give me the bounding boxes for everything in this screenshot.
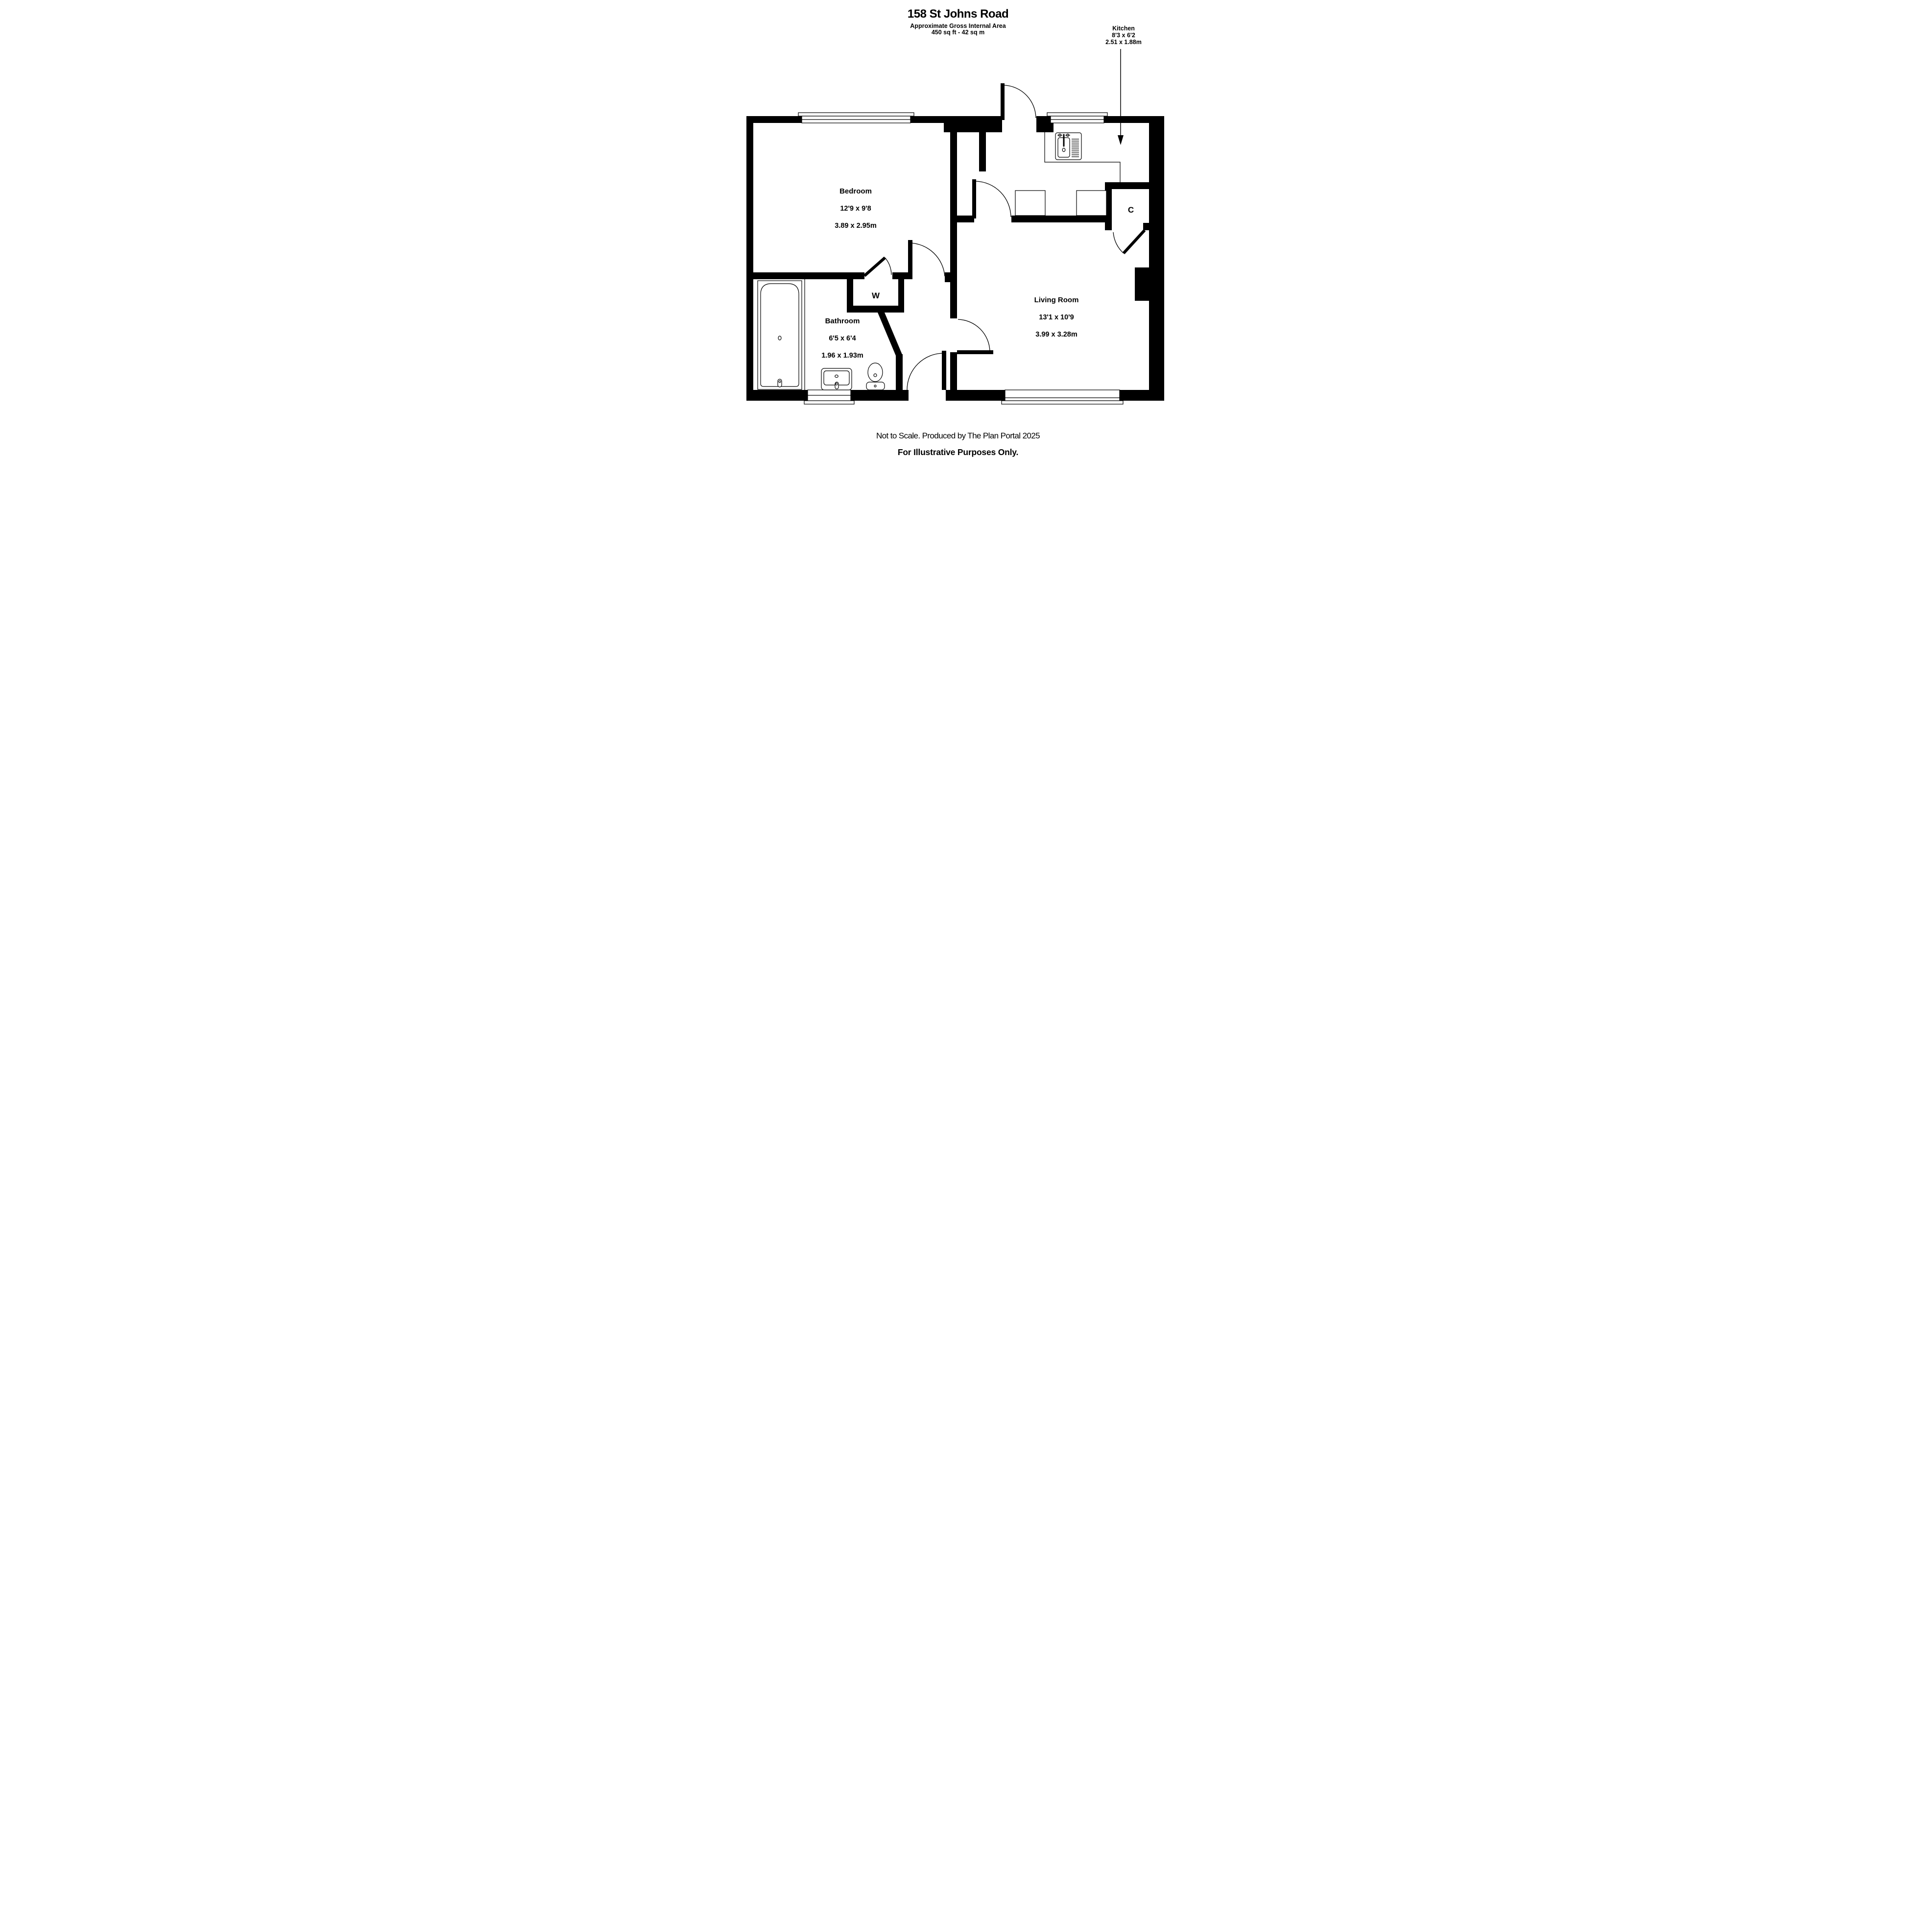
wall-cupboard-jamb	[1143, 223, 1149, 230]
wall-bottom-bathroom-right	[851, 390, 909, 401]
background	[718, 0, 1197, 483]
wall-bottom-living-right	[1120, 390, 1164, 401]
bathroom-dim-imperial: 6'5 x 6'4	[829, 335, 856, 342]
wall-hall-living-stub	[950, 352, 957, 401]
living-room-window	[1002, 390, 1123, 404]
floorplan-page: 158 St Johns Road Approximate Gross Inte…	[718, 0, 1197, 483]
wall-left-outer	[746, 116, 753, 401]
footer-disclaimer: Not to Scale. Produced by The Plan Porta…	[876, 431, 1040, 440]
living-room-dim-metric: 3.99 x 3.28m	[1035, 331, 1077, 338]
bedroom-label: Bedroom 12'9 x 9'8 3.89 x 2.95m	[835, 187, 876, 230]
wall-right-outer	[1149, 116, 1164, 401]
kitchen-dim-imperial: 8'3 x 6'2	[1112, 32, 1135, 39]
floorplan-canvas: 158 St Johns Road Approximate Gross Inte…	[718, 0, 1197, 483]
bedroom-name: Bedroom	[839, 187, 872, 195]
wardrobe-label: W	[872, 291, 880, 300]
wall-wardrobe-top-right	[892, 272, 909, 279]
wall-top-bedroom-left	[746, 116, 802, 123]
kitchen-unit-1	[1015, 191, 1045, 216]
wash-basin-icon	[821, 368, 852, 390]
kitchen-unit-2	[1077, 191, 1106, 216]
wall-bedroom-bathroom	[753, 272, 847, 279]
kitchen-window	[1047, 113, 1107, 123]
wall-top-door-jamb	[1036, 116, 1051, 123]
wall-bottom-bathroom-left	[746, 390, 808, 401]
living-room-name: Living Room	[1034, 296, 1079, 304]
kitchen-name: Kitchen	[1112, 25, 1135, 32]
wall-wardrobe-bottom	[847, 306, 904, 313]
wall-entry-kitchen-stub	[979, 132, 986, 171]
wall-bathroom-right-lower	[896, 354, 903, 390]
page-title: 158 St Johns Road	[908, 7, 1008, 21]
wall-bedroom-door-jamb	[945, 272, 950, 282]
bedroom-dim-imperial: 12'9 x 9'8	[840, 205, 871, 213]
living-room-dim-imperial: 13'1 x 10'9	[1039, 314, 1074, 321]
wall-divider-east	[1011, 216, 1105, 222]
wall-top-bedroom-right	[910, 116, 1002, 123]
bathroom-window	[804, 390, 854, 404]
kitchen-dim-metric: 2.51 x 1.88m	[1105, 39, 1142, 46]
bathroom-name: Bathroom	[825, 317, 860, 325]
footer-illustrative: For Illustrative Purposes Only.	[898, 447, 1018, 457]
living-room-label: Living Room 13'1 x 10'9 3.99 x 3.28m	[1034, 296, 1079, 338]
kitchen-sink-icon	[1055, 133, 1081, 160]
page-area: 450 sq ft - 42 sq m	[932, 29, 984, 36]
bedroom-dim-metric: 3.89 x 2.95m	[835, 222, 876, 230]
bathtub-icon	[758, 279, 805, 390]
bedroom-window	[798, 113, 914, 123]
cupboard-label: C	[1128, 205, 1134, 215]
wall-cupboard-top	[1105, 182, 1164, 189]
wall-wardrobe-top-left	[847, 272, 864, 279]
page-subtitle: Approximate Gross Internal Area	[910, 23, 1006, 29]
bathroom-dim-metric: 1.96 x 1.93m	[821, 352, 863, 360]
wall-divider-west	[950, 216, 974, 222]
wall-chimney-breast	[1135, 267, 1149, 301]
